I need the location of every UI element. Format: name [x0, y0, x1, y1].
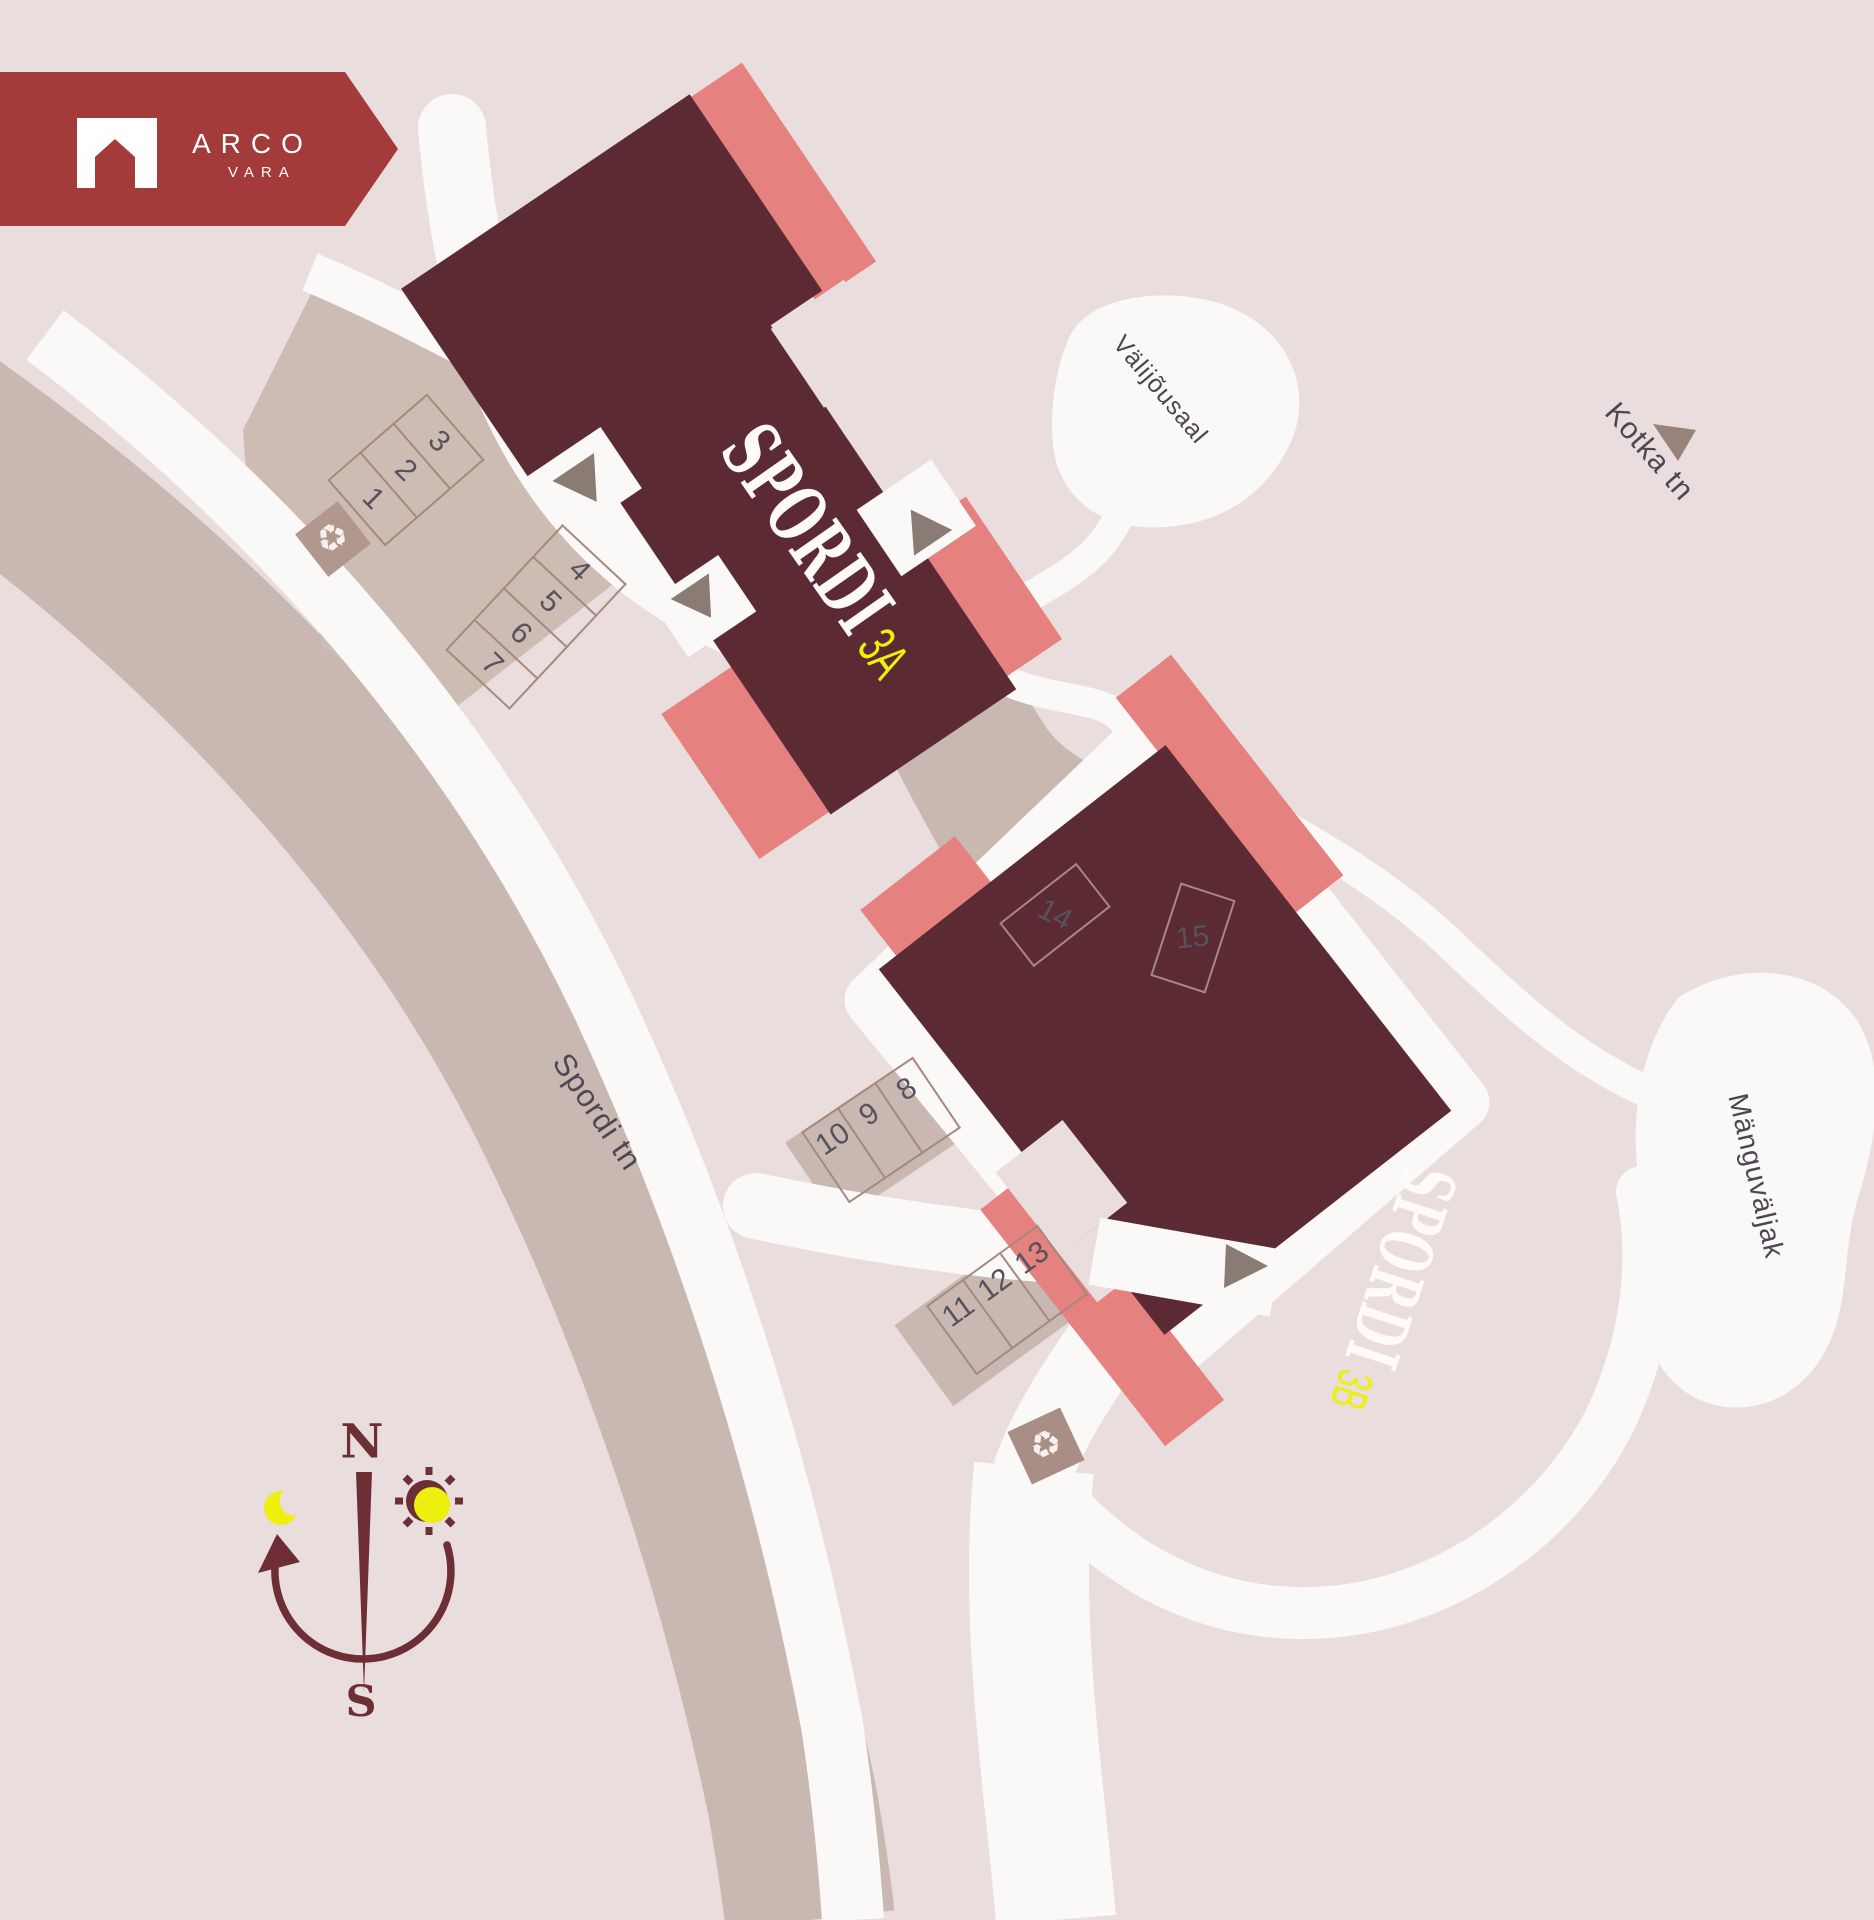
spot-number: 3: [421, 424, 457, 460]
compass-north-label: N: [341, 1415, 384, 1470]
spot-number: 1: [355, 481, 391, 517]
spot-number: 4: [561, 553, 597, 589]
logo-brand-subtext: VARA: [228, 164, 296, 181]
spot-number: 8: [890, 1071, 923, 1109]
spot-number: 15: [1175, 919, 1212, 956]
path-bottom: [1029, 1468, 1056, 1920]
spot-number: 7: [474, 646, 510, 682]
compass-moon-cut: [280, 1487, 309, 1516]
spot-number: 5: [532, 584, 568, 620]
compass-sun-disc: [414, 1487, 450, 1523]
spot-number: 14: [1032, 892, 1077, 938]
logo-brand-text: ARCO: [192, 128, 313, 160]
compass-arrowhead-icon: [258, 1534, 300, 1573]
compass: [258, 1467, 463, 1692]
site-plan-graphics: [0, 0, 1874, 1920]
spot-number: 2: [387, 453, 423, 489]
spot-number: 6: [503, 616, 539, 652]
compass-south-label: S: [345, 1677, 376, 1727]
spot-number: 9: [853, 1096, 886, 1134]
site-plan: ARCO VARA SPORDI 3A SPORDI 3B Välijõusaa…: [0, 0, 1874, 1920]
